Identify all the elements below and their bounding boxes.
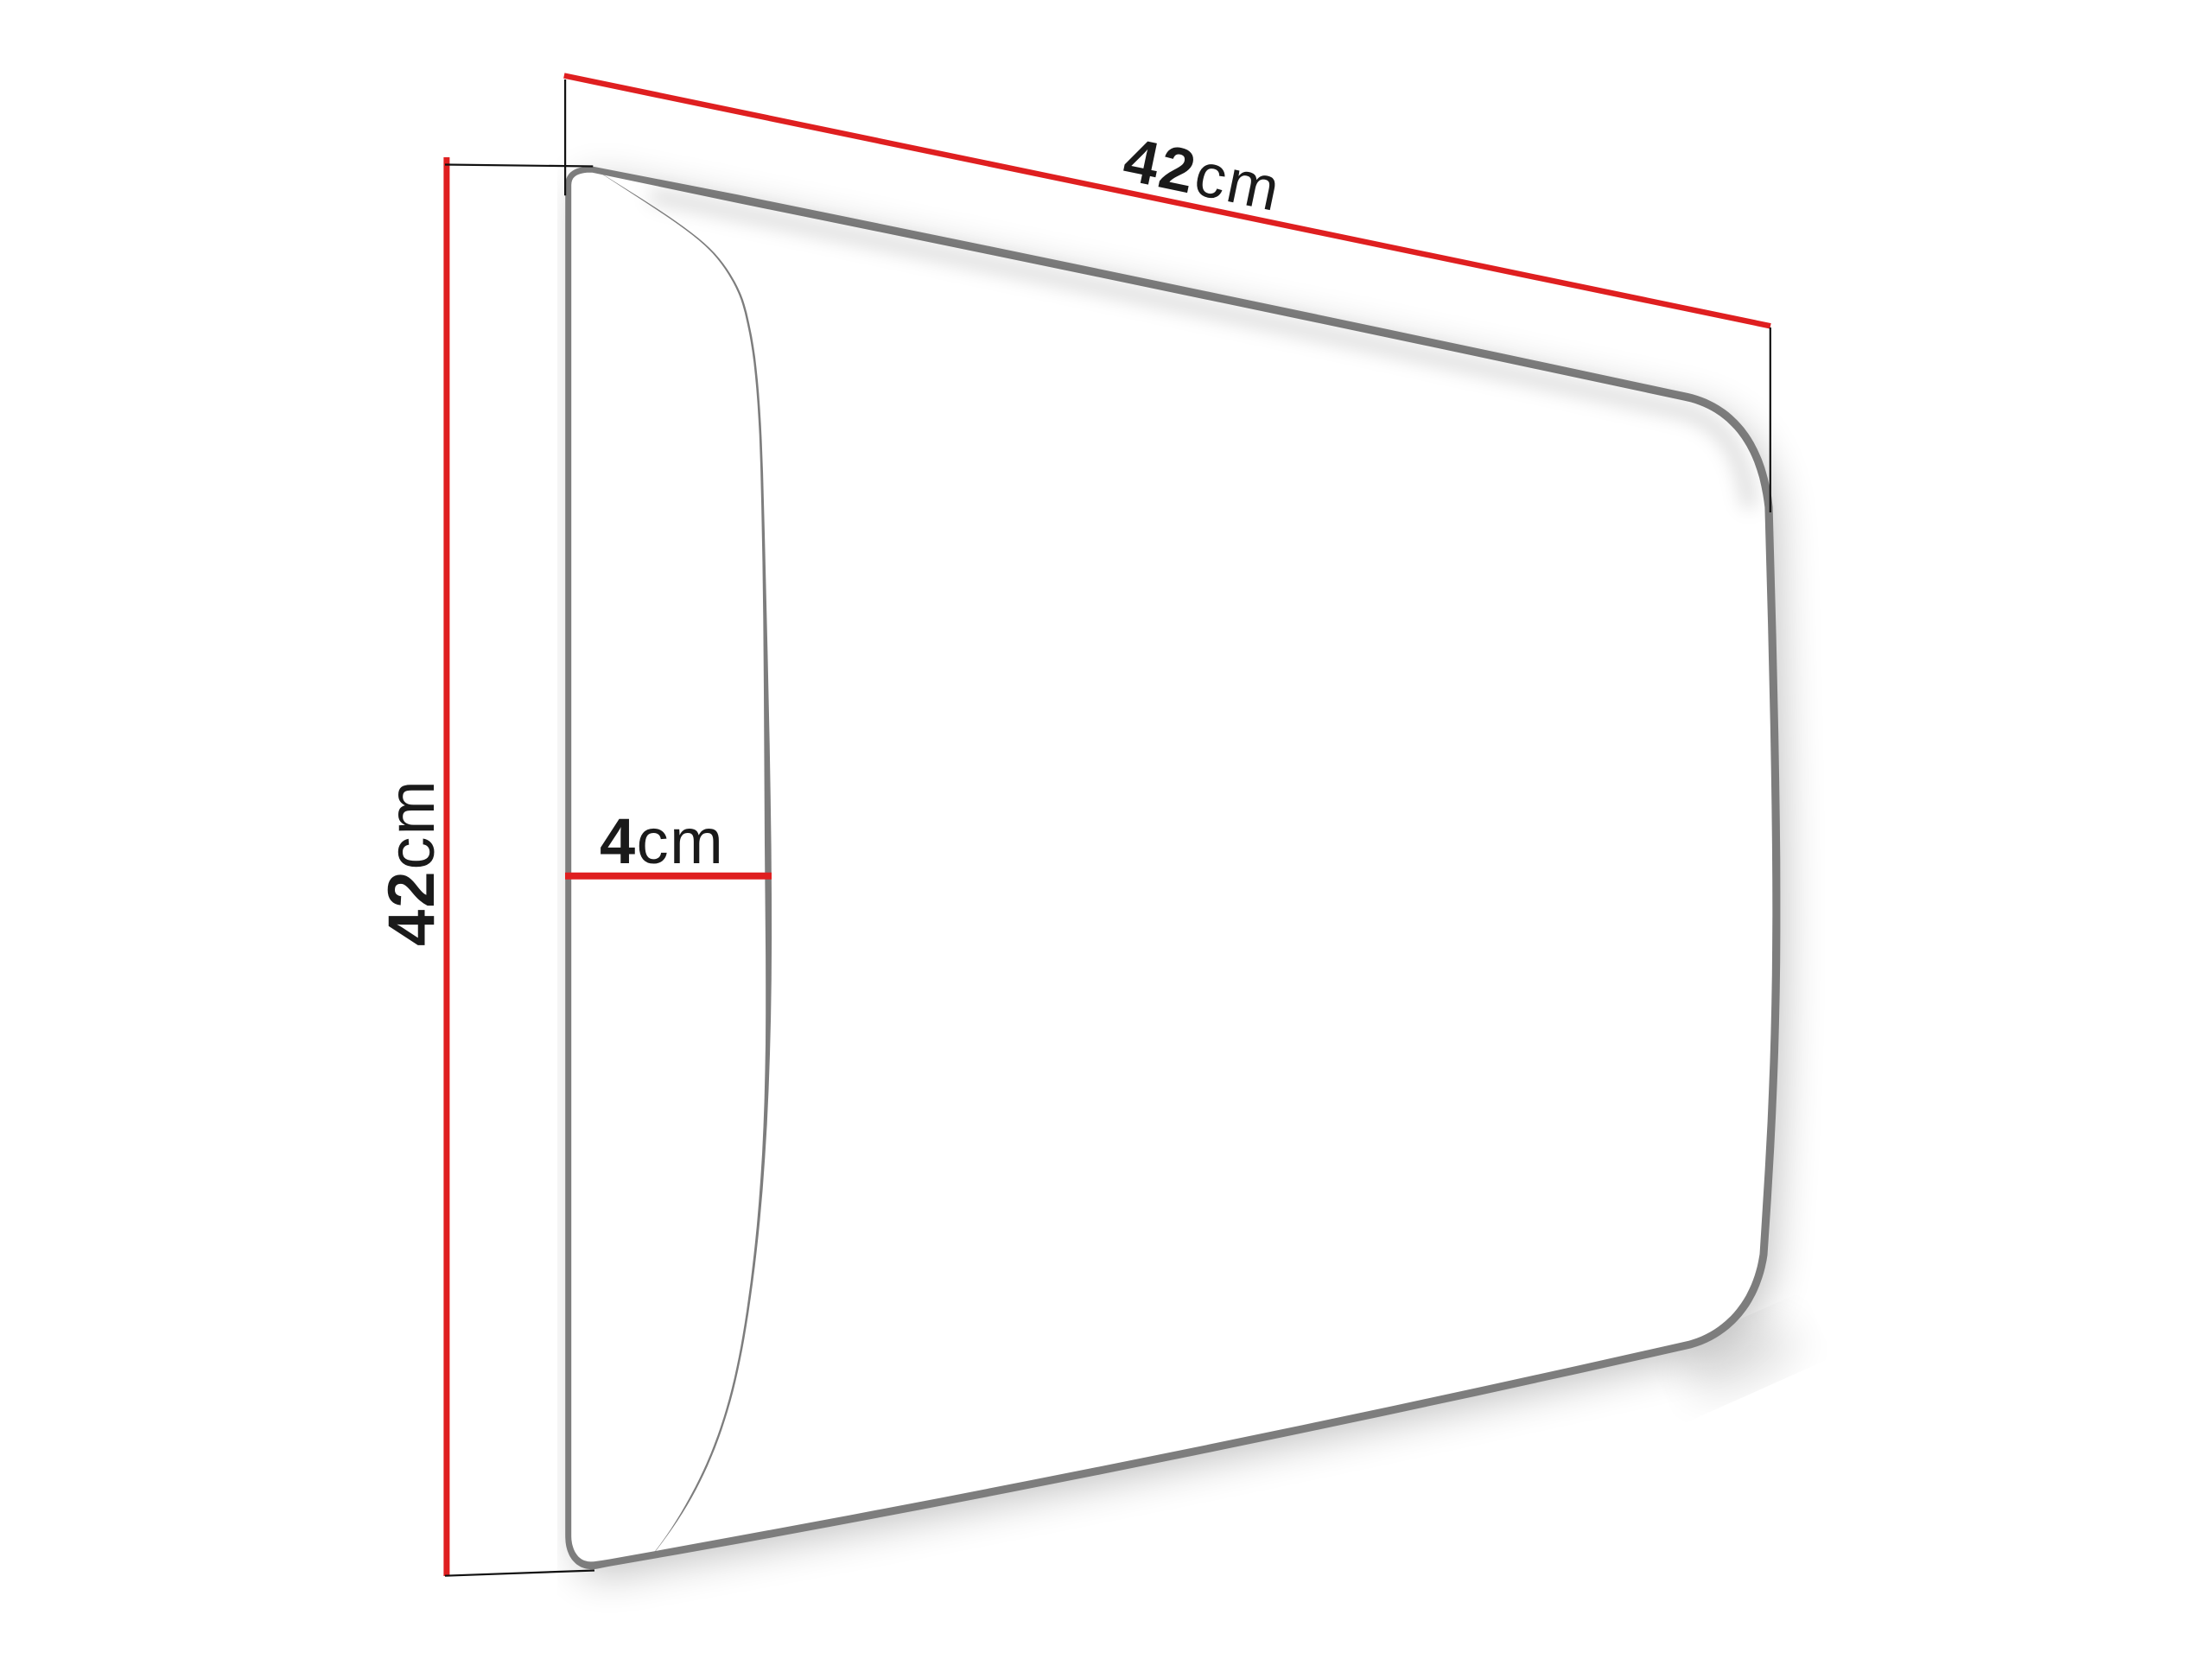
svg-text:4cm: 4cm [600, 805, 724, 877]
svg-text:42cm: 42cm [375, 779, 448, 946]
